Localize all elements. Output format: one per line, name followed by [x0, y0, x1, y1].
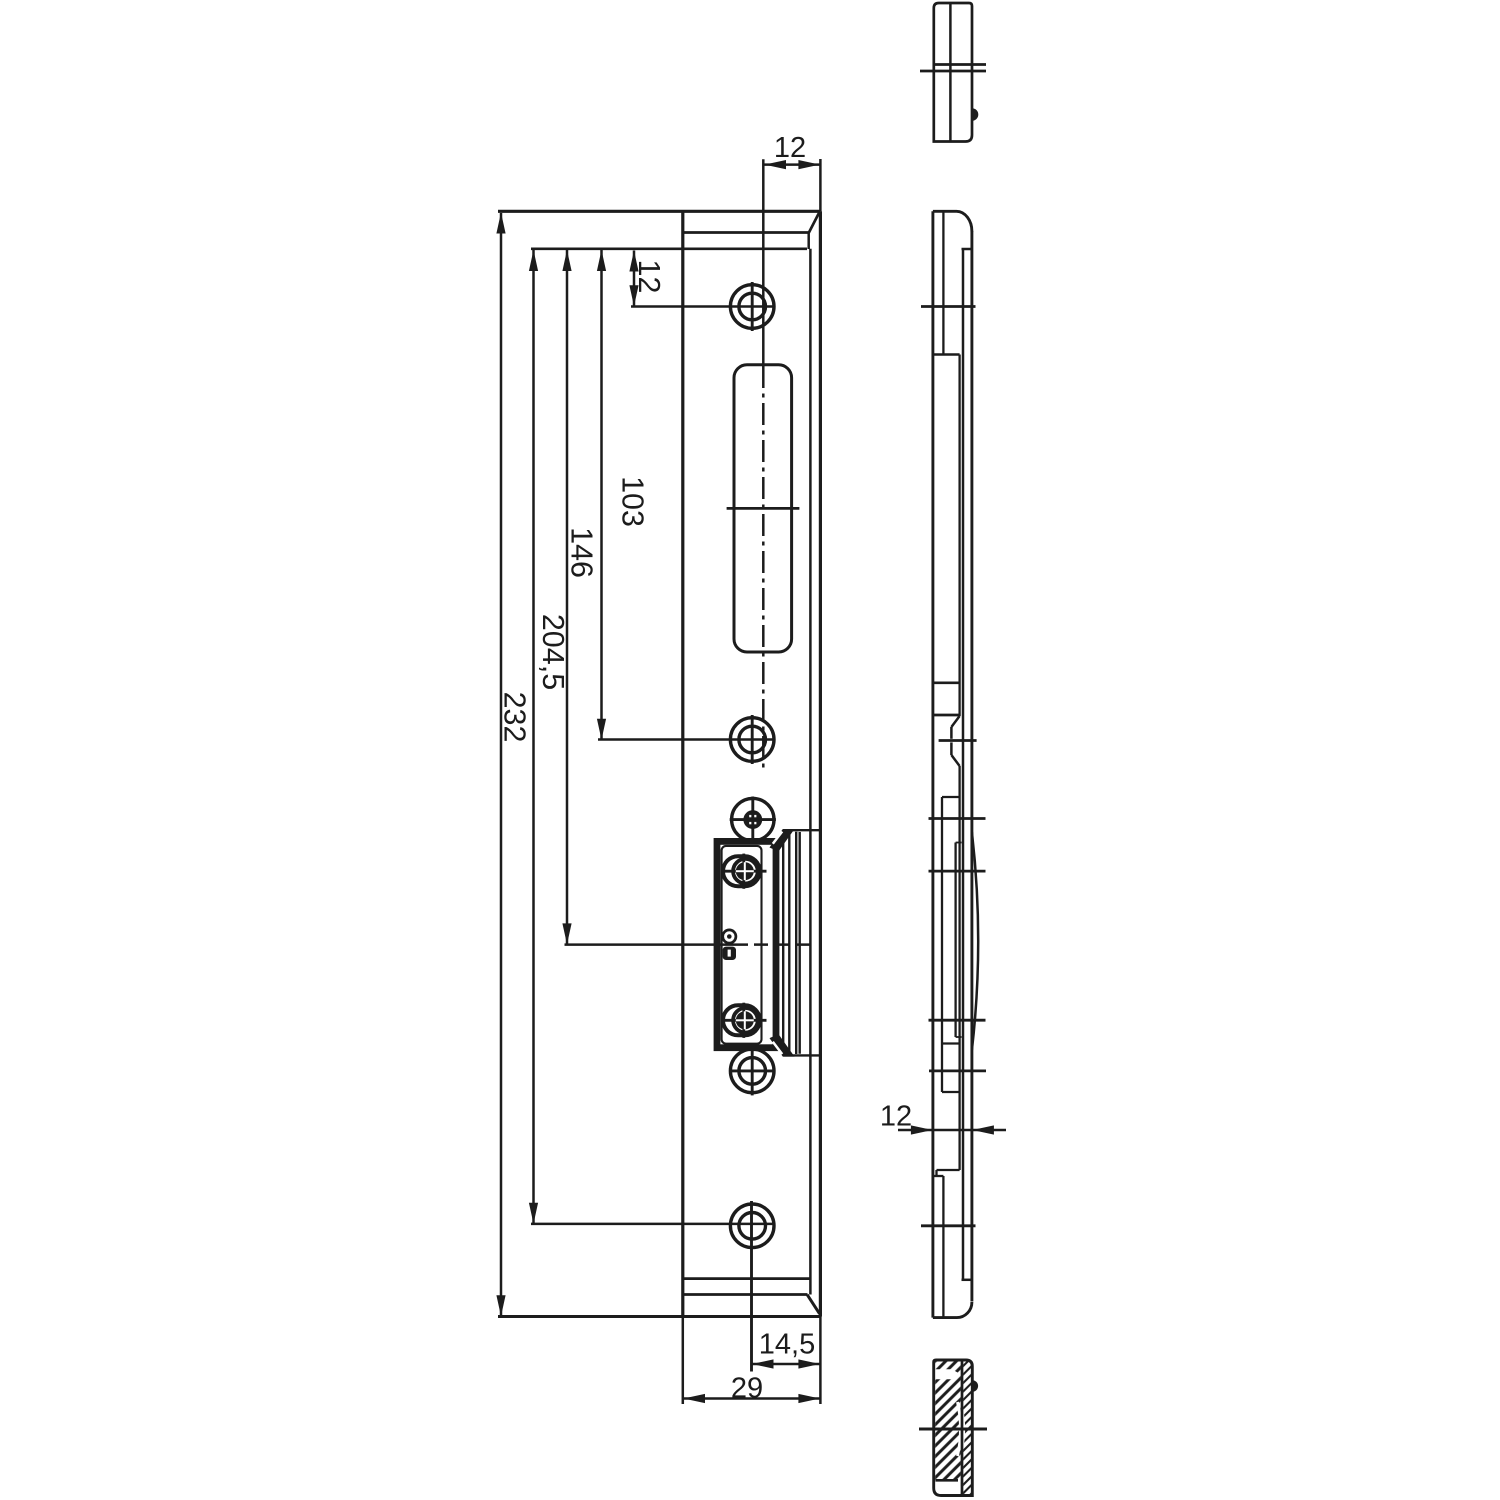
- svg-text:204,5: 204,5: [536, 614, 570, 690]
- svg-text:12: 12: [774, 132, 806, 164]
- svg-text:146: 146: [565, 527, 599, 578]
- svg-text:12: 12: [880, 1101, 912, 1133]
- svg-text:103: 103: [616, 476, 650, 527]
- svg-text:12: 12: [632, 260, 666, 294]
- svg-text:14,5: 14,5: [759, 1329, 815, 1361]
- svg-text:232: 232: [498, 692, 532, 743]
- svg-text:29: 29: [731, 1373, 763, 1405]
